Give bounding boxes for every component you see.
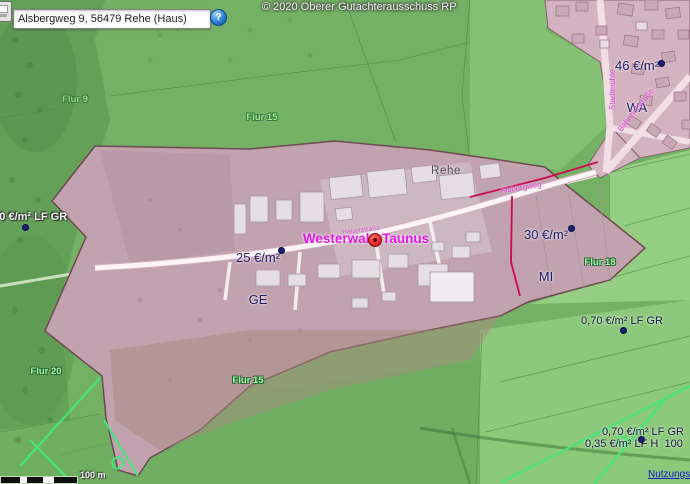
printer-icon[interactable]: [0, 1, 12, 22]
value-point-agri-left: [22, 224, 29, 231]
usage-terms-link[interactable]: Nutzungsbedingungen: [648, 469, 690, 480]
map-application: 46 €/m² WA 25 €/m² GE 30 €/m² MI 0,70 €/…: [0, 0, 690, 484]
value-point-agri-bottom: [638, 436, 645, 443]
value-point-agri-right: [620, 327, 627, 334]
help-icon[interactable]: ?: [210, 9, 227, 26]
scale-segment: [27, 477, 43, 483]
value-point-mi: [568, 225, 575, 232]
scale-segment: [54, 477, 77, 483]
value-point-ge: [278, 247, 285, 254]
map-canvas[interactable]: [0, 0, 690, 484]
search-input[interactable]: [13, 9, 211, 29]
search-result-marker: [368, 233, 382, 247]
scale-segment: [20, 477, 27, 483]
scale-segment: [1, 477, 20, 483]
value-point-wa: [658, 60, 665, 67]
scale-segment: [43, 477, 54, 483]
scale-bar: [1, 477, 77, 483]
